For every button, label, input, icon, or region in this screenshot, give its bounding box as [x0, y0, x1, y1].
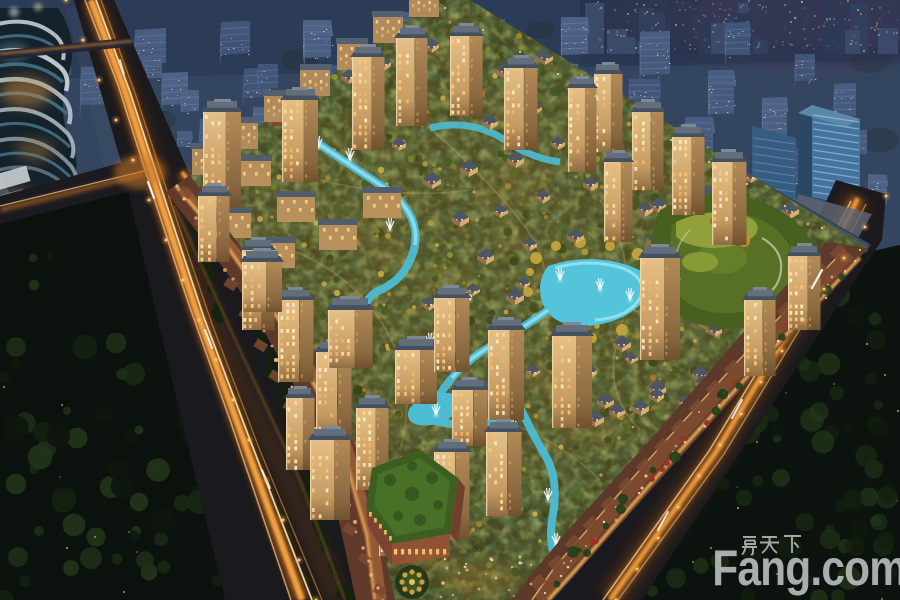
svg-text:Fang.com: Fang.com — [712, 540, 900, 596]
